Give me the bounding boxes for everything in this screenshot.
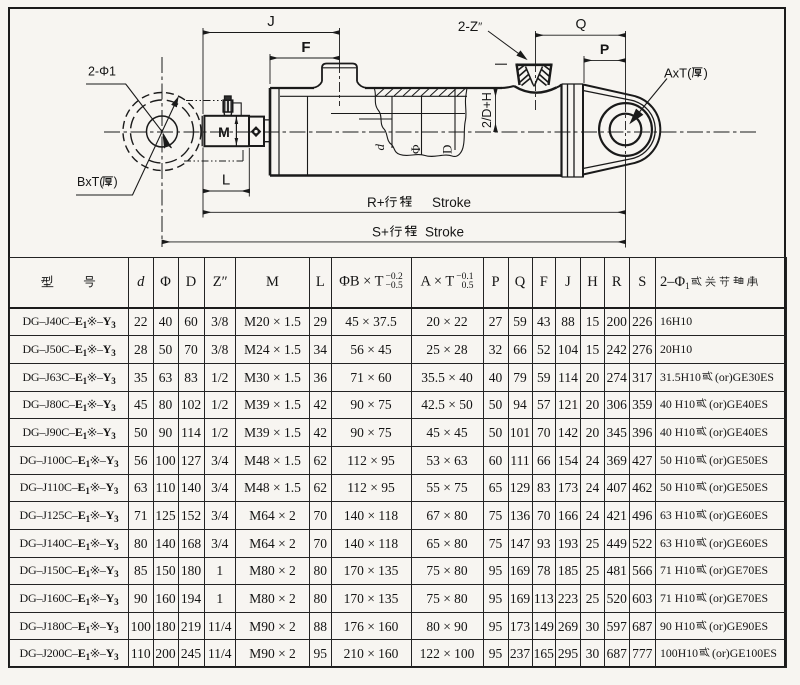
- svg-text:): ): [704, 66, 708, 81]
- svg-text:L: L: [222, 172, 230, 189]
- svg-text:J: J: [267, 13, 275, 30]
- svg-text:d: d: [372, 144, 387, 151]
- svg-text:F: F: [301, 39, 310, 56]
- svg-text:P: P: [600, 41, 609, 57]
- svg-text:Stroke: Stroke: [425, 225, 464, 240]
- svg-text:Stroke: Stroke: [432, 195, 471, 210]
- svg-text:2-Φ1: 2-Φ1: [88, 65, 116, 79]
- svg-text:AxT(: AxT(: [664, 66, 692, 81]
- svg-text:R+: R+: [367, 195, 385, 210]
- svg-text:D: D: [440, 145, 455, 154]
- svg-text:Φ: Φ: [408, 144, 423, 154]
- svg-text:2-Z′′: 2-Z′′: [458, 19, 482, 34]
- svg-text:2/D+H: 2/D+H: [480, 92, 494, 128]
- svg-text:M: M: [218, 124, 230, 140]
- svg-text:BxT(: BxT(: [77, 175, 104, 189]
- svg-text:): ): [114, 175, 118, 189]
- svg-text:Q: Q: [576, 16, 587, 32]
- svg-text:S+: S+: [372, 225, 389, 240]
